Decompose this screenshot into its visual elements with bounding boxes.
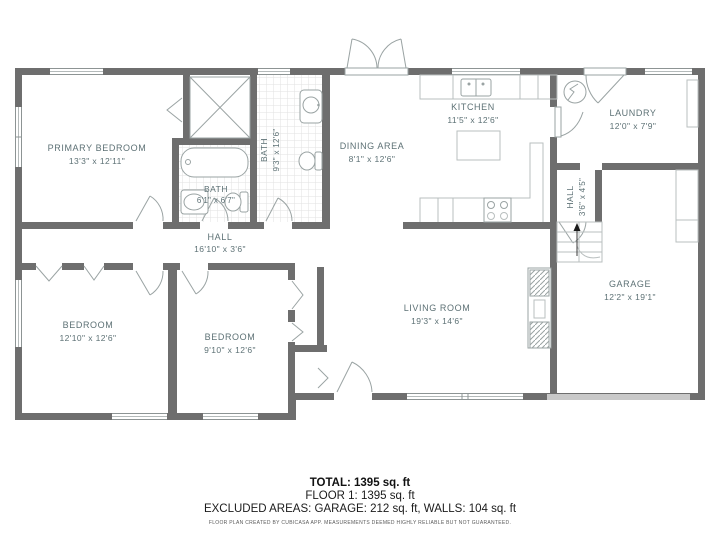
window (452, 68, 520, 75)
laundry-machine-icon (564, 81, 586, 103)
sliding-door (407, 393, 523, 400)
window (112, 413, 167, 420)
floor-area-text: FLOOR 1: 1395 sq. ft (305, 490, 415, 502)
dims-primary-bedroom: 13'3" x 12'11" (69, 156, 125, 166)
dims-garage: 12'2" x 19'1" (604, 292, 656, 302)
label-hall-small: HALL (565, 185, 575, 208)
door-laundry-back (584, 68, 626, 103)
window (203, 413, 258, 420)
door-front-entry (334, 362, 372, 400)
total-area-text: TOTAL: 1395 sq. ft (310, 477, 411, 489)
door-laundry-side (550, 107, 583, 137)
label-primary-bedroom: PRIMARY BEDROOM (48, 143, 147, 153)
laundry-counter (687, 80, 698, 127)
dims-living-room: 19'3" x 14'6" (411, 316, 463, 326)
floor-plan-page: PRIMARY BEDROOM 13'3" x 12'11" BATH 6'1"… (0, 0, 720, 540)
window (15, 280, 22, 347)
window (258, 68, 290, 75)
window (15, 107, 22, 167)
door-bedroom-1 (133, 263, 163, 295)
bath-large-sink (300, 90, 322, 123)
dims-laundry: 12'0" x 7'9" (610, 121, 657, 131)
floor-plan: PRIMARY BEDROOM 13'3" x 12'11" BATH 6'1"… (0, 0, 720, 540)
fireplace (528, 268, 551, 348)
label-garage: GARAGE (609, 279, 651, 289)
stairs (557, 222, 602, 262)
dims-kitchen: 11'5" x 12'6" (447, 115, 498, 125)
label-laundry: LAUNDRY (609, 108, 656, 118)
dims-bath-small: 6'1" x 6'7" (197, 196, 235, 205)
dims-dining-area: 8'1" x 12'6" (349, 154, 396, 164)
label-living-room: LIVING ROOM (404, 303, 471, 313)
label-kitchen: KITCHEN (451, 102, 495, 112)
kitchen-counter-top (420, 75, 557, 99)
bathtub (181, 148, 248, 177)
window (645, 68, 692, 75)
dims-hall: 16'10" x 3'6" (194, 244, 246, 254)
stove (484, 198, 511, 222)
label-bedroom-2: BEDROOM (205, 332, 256, 342)
label-hall-small-group: HALL 3'6" x 4'5" (565, 178, 587, 216)
summary-block: TOTAL: 1395 sq. ft FLOOR 1: 1395 sq. ft … (204, 477, 517, 526)
garage-door (547, 394, 690, 402)
label-bedroom-1: BEDROOM (63, 320, 114, 330)
dims-bath-large: 9'3" x 12'6" (272, 128, 281, 171)
door-primary-bedroom (133, 196, 163, 229)
dims-bedroom-1: 12'10" x 12'6" (60, 333, 117, 343)
door-bedroom-2 (180, 263, 208, 294)
label-bath-small: BATH (204, 184, 228, 194)
excluded-areas-text: EXCLUDED AREAS: GARAGE: 212 sq. ft, WALL… (204, 503, 517, 515)
garage-cabinet (676, 170, 698, 242)
disclaimer-text: FLOOR PLAN CREATED BY CUBICASA APP. MEAS… (209, 520, 511, 526)
double-entry-door (345, 39, 408, 75)
label-hall: HALL (208, 232, 233, 242)
kitchen-counter-bottom (420, 143, 543, 222)
dims-hall-small: 3'6" x 4'5" (578, 178, 587, 216)
bath-large-toilet (299, 152, 322, 170)
windows (15, 68, 692, 420)
closet-x (190, 77, 250, 138)
label-dining-area: DINING AREA (340, 141, 405, 151)
kitchen-island (457, 131, 500, 160)
label-bath-large: BATH (259, 138, 269, 162)
window (50, 68, 103, 75)
dims-bedroom-2: 9'10" x 12'6" (204, 345, 256, 355)
